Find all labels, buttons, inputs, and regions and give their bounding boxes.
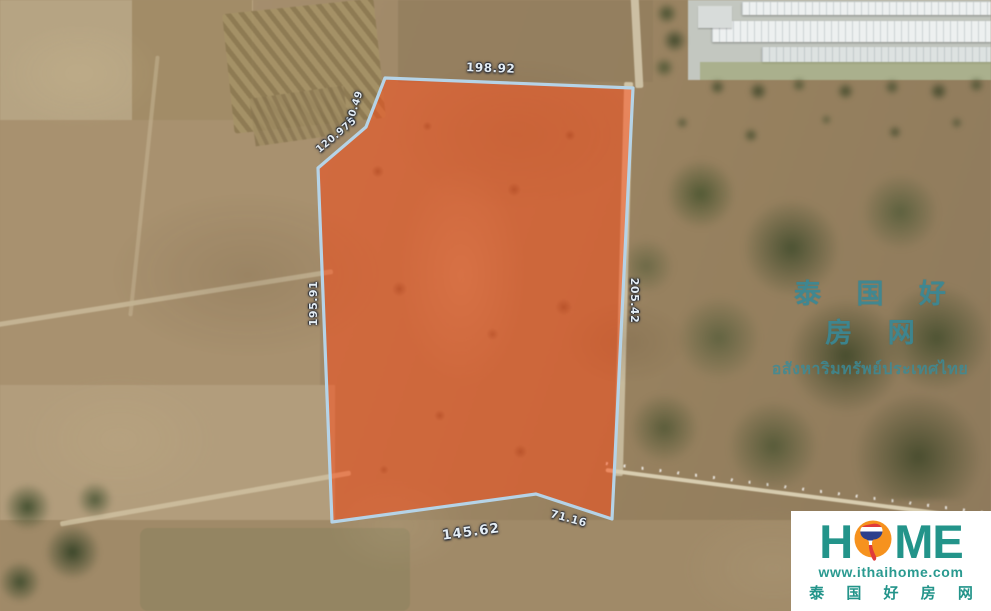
logo-letter-h: H xyxy=(819,518,852,565)
site-watermark: 泰 国 好 房 网 อสังหาริมทรัพย์ประเทศไทย xyxy=(755,272,985,382)
ithaihome-logo: H xyxy=(791,511,991,611)
logo-chinese-text: 泰 国 好 房 网 xyxy=(800,582,982,603)
watermark-chinese-text: 泰 国 好 房 网 xyxy=(755,272,985,350)
watermark-thai-text: อสังหาริมทรัพย์ประเทศไทย xyxy=(755,357,985,382)
measurement-label-top: 198.92 xyxy=(466,60,516,76)
logo-wordmark: H xyxy=(819,519,962,563)
logo-website-url: www.ithaihome.com xyxy=(818,564,963,580)
logo-letters-me: ME xyxy=(894,518,963,565)
thailand-map-icon xyxy=(853,520,893,566)
measurement-label-right: 205.42 xyxy=(628,278,641,323)
measurement-label-left: 195.91 xyxy=(307,281,320,326)
satellite-map-image: 198.92 40.49 120.975 195.91 205.42 145.6… xyxy=(0,0,991,611)
